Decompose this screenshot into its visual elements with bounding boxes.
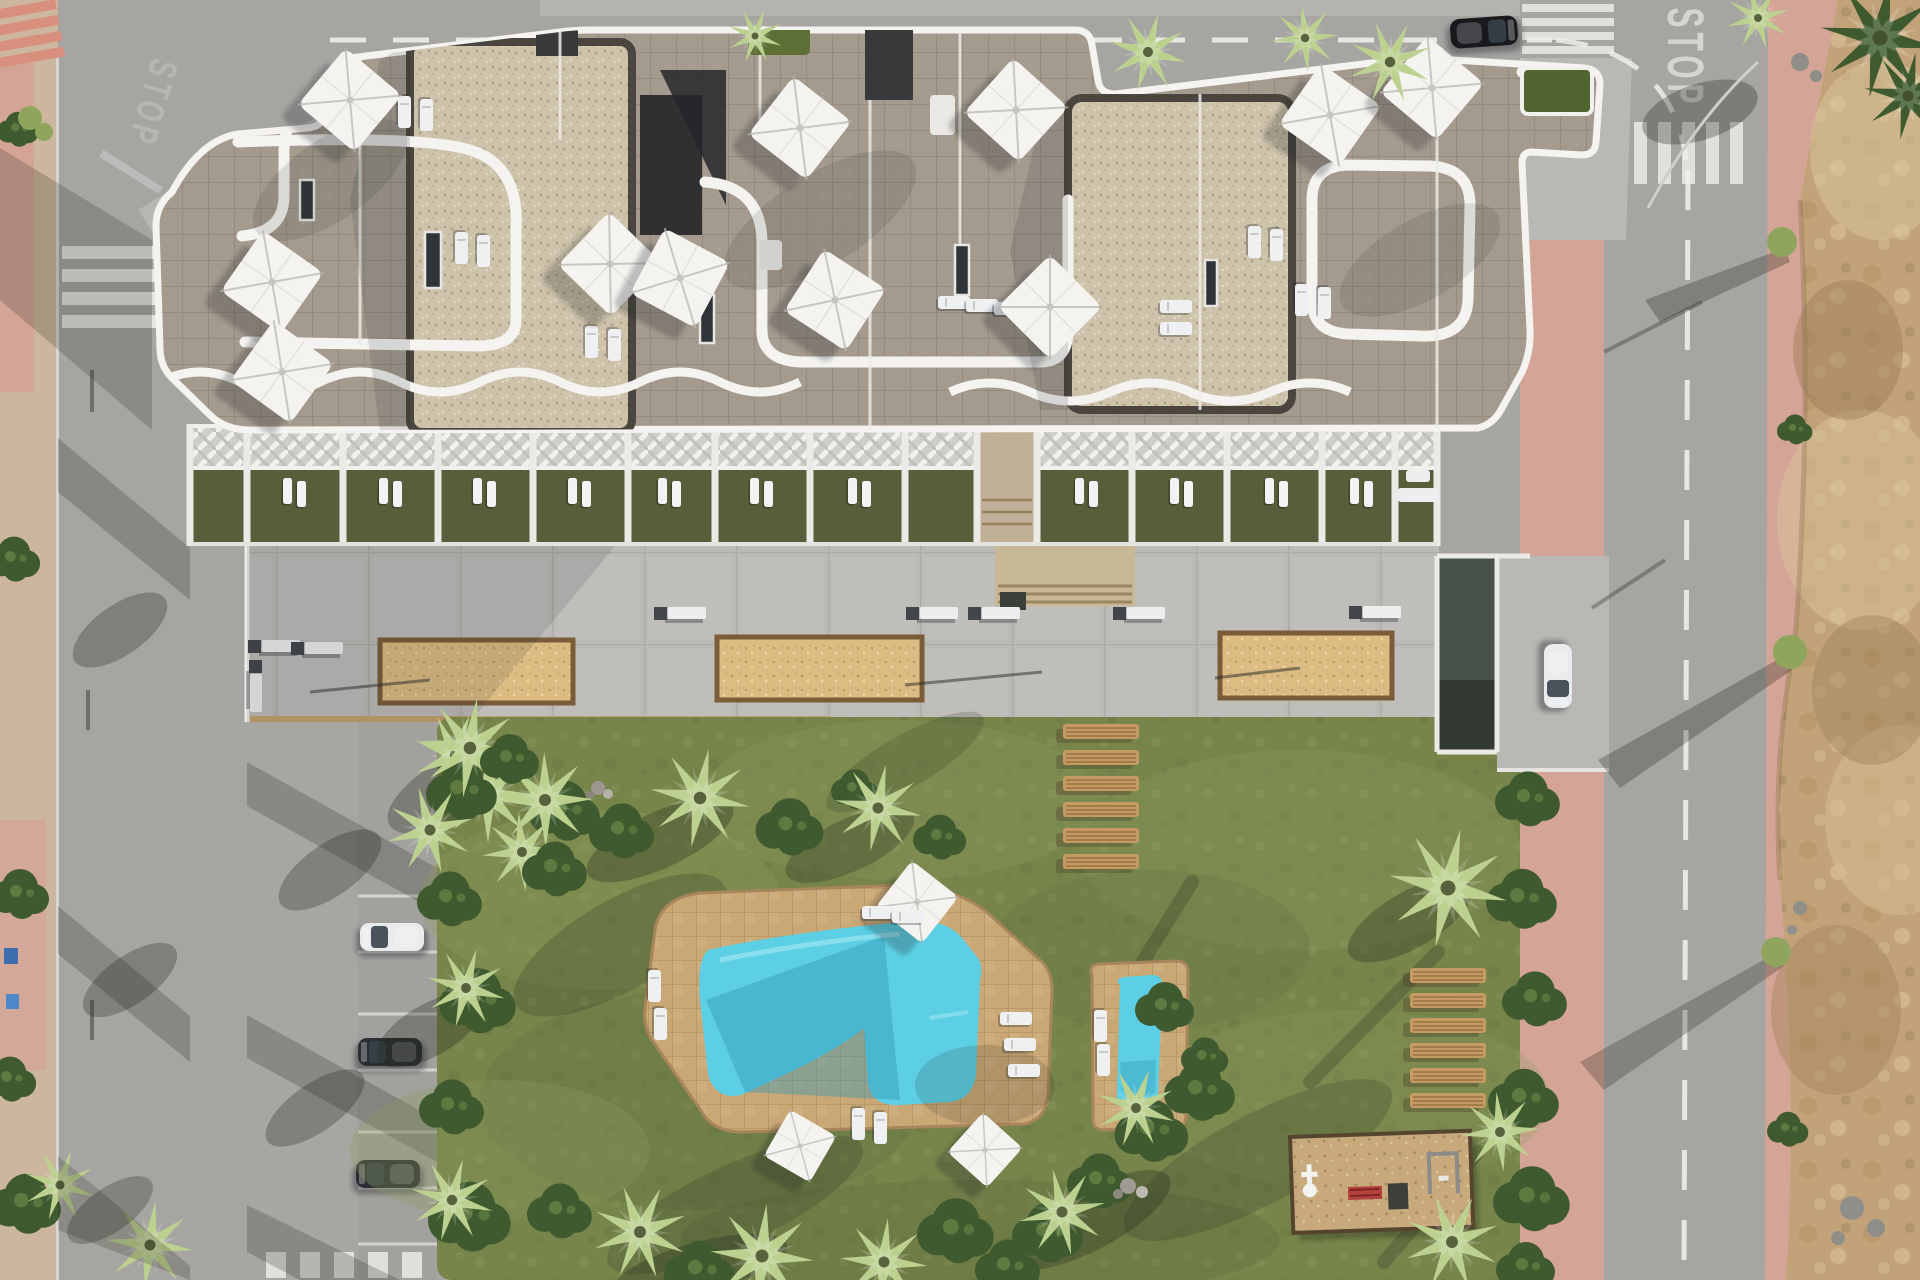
petanque-court-2	[717, 637, 922, 700]
recycle-bin-1	[4, 948, 18, 964]
aerial-render: STOP STOP	[0, 0, 1920, 1280]
playground-planter	[1388, 1183, 1409, 1210]
playground-bench-red	[1348, 1186, 1382, 1200]
terrace-entrance-corridor	[977, 428, 1037, 546]
garage-entrance	[1437, 556, 1609, 770]
driving-car-black	[1445, 15, 1523, 56]
petanque-court-3	[1220, 633, 1392, 698]
roof-garden	[1522, 68, 1592, 114]
building	[156, 16, 1625, 437]
deck-shade	[915, 1045, 1055, 1125]
plaza	[246, 540, 1439, 722]
scene-svg: STOP STOP	[0, 0, 1920, 1280]
car-at-ramp	[1538, 640, 1572, 712]
parked-car-white	[356, 923, 428, 957]
recycle-bin-2	[6, 994, 19, 1009]
terrace-sofa	[1398, 488, 1438, 502]
left-pink-path-2	[0, 820, 46, 1070]
ground-terraces	[190, 424, 1438, 546]
top-curb-strip	[540, 0, 1520, 16]
